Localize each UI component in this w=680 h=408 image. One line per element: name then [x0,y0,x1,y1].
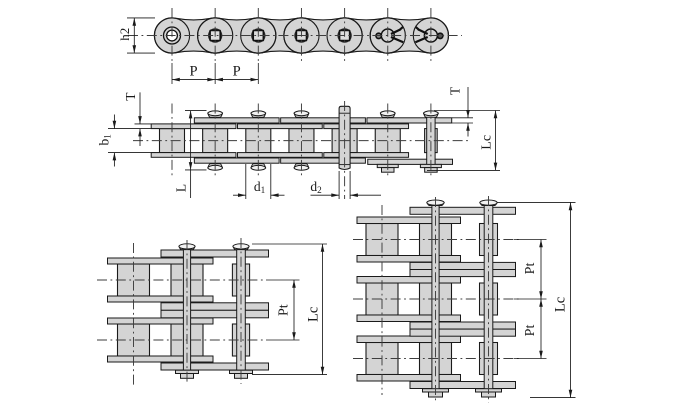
svg-text:P: P [190,64,198,80]
svg-text:Lc: Lc [306,307,322,322]
svg-text:Pt: Pt [523,263,538,275]
svg-text:T: T [123,92,138,101]
svg-text:L: L [174,184,189,192]
svg-text:Lc: Lc [480,135,495,150]
svg-text:h2: h2 [117,28,132,41]
svg-text:P: P [233,64,241,80]
svg-text:Pt: Pt [523,325,538,337]
svg-text:T: T [448,86,463,95]
svg-text:Lc: Lc [553,297,569,312]
svg-text:Pt: Pt [277,304,292,316]
